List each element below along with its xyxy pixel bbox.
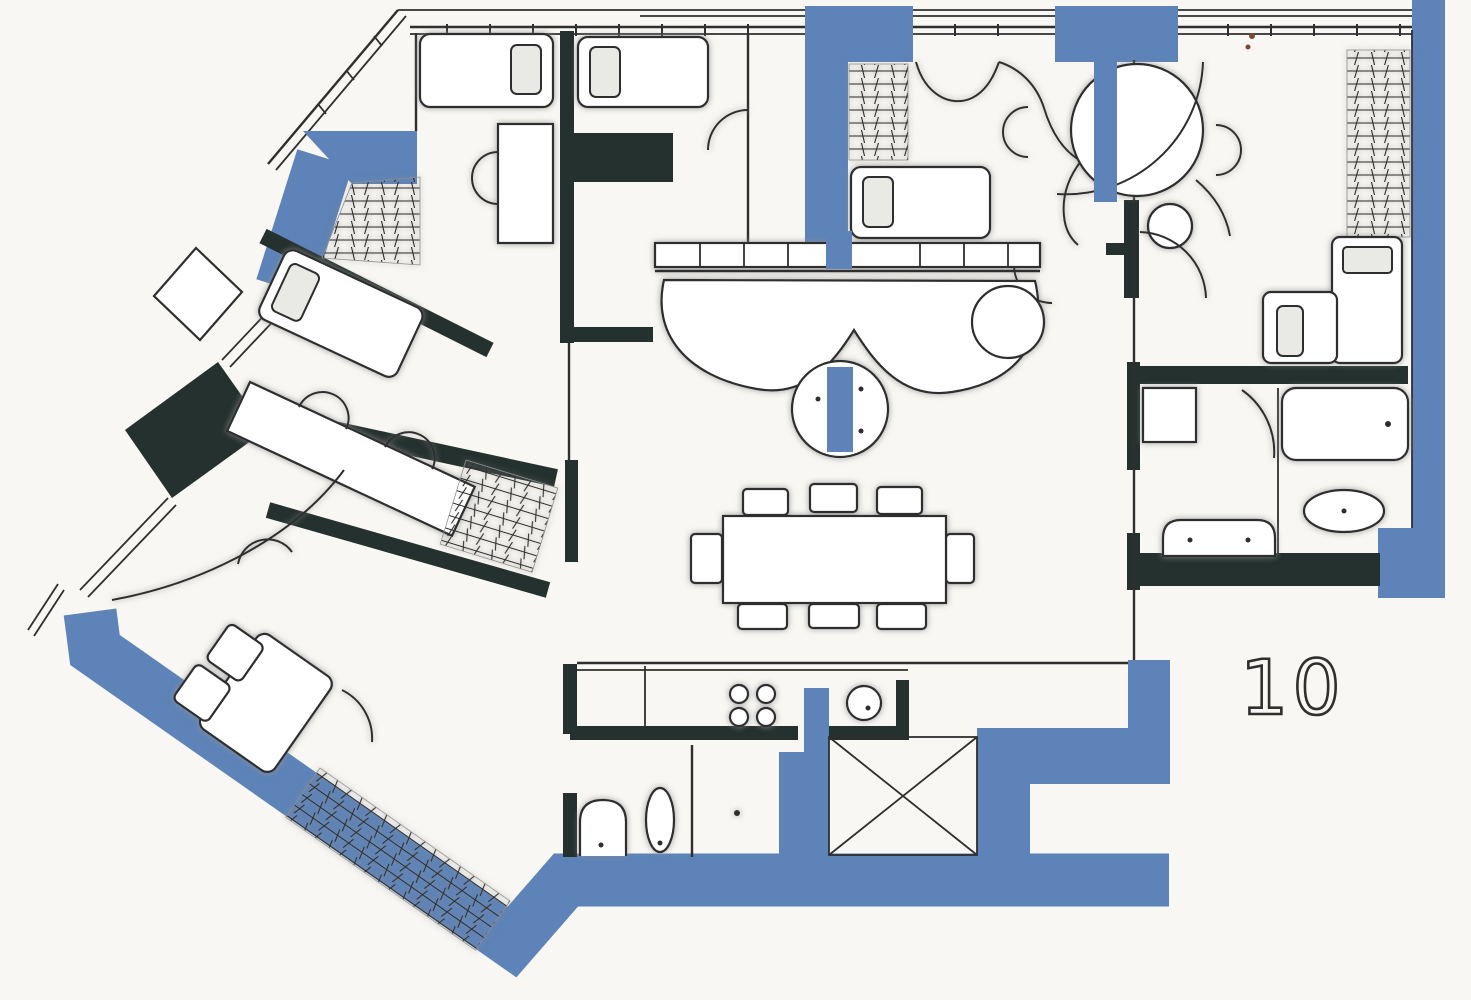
dining-chair bbox=[738, 604, 787, 629]
floor-plan-scan: 10 bbox=[0, 0, 1471, 1000]
wardrobe bbox=[572, 133, 673, 182]
cooktop-burner bbox=[757, 685, 775, 703]
wall-pier bbox=[1094, 60, 1117, 202]
dining-chair bbox=[877, 604, 926, 629]
stool bbox=[1148, 204, 1192, 248]
faucet-dot bbox=[1188, 538, 1193, 543]
rug-hatched bbox=[1347, 50, 1410, 237]
interior-wall bbox=[560, 327, 653, 342]
interior-wall bbox=[1124, 200, 1139, 298]
dining-chair bbox=[691, 534, 722, 583]
table-dot bbox=[859, 387, 864, 392]
exterior-wall-pier bbox=[1128, 660, 1170, 784]
exterior-wall-pier bbox=[1055, 6, 1178, 62]
kitchen-sink bbox=[847, 686, 881, 720]
dining-chair bbox=[810, 484, 857, 512]
interior-wall bbox=[563, 664, 577, 734]
toilet bbox=[580, 800, 626, 856]
ink-speck bbox=[1246, 45, 1251, 50]
bed-pillow bbox=[590, 47, 620, 97]
dining-chair bbox=[946, 534, 974, 583]
rug-hatched bbox=[849, 64, 908, 160]
interior-wall bbox=[560, 31, 574, 343]
desk bbox=[498, 124, 553, 243]
faucet-dot bbox=[1246, 538, 1251, 543]
paper-background bbox=[0, 0, 1471, 1000]
ink-speck bbox=[1249, 33, 1255, 39]
table-dot bbox=[816, 397, 821, 402]
faucet-dot bbox=[1342, 509, 1347, 514]
exterior-wall-pier bbox=[805, 60, 848, 250]
exterior-wall-pier bbox=[779, 752, 806, 858]
fixture-dot bbox=[599, 843, 604, 848]
kitchen-wall bbox=[570, 726, 798, 740]
cooktop-burner bbox=[730, 685, 748, 703]
interior-wall bbox=[563, 793, 577, 857]
bed-pillow bbox=[863, 177, 893, 227]
exterior-wall-right bbox=[1378, 528, 1445, 598]
bed-pillow bbox=[511, 45, 541, 94]
bathroom-wall bbox=[1130, 553, 1380, 586]
shower bbox=[1143, 388, 1196, 442]
wall-pier bbox=[826, 231, 852, 269]
door-dot bbox=[734, 810, 740, 816]
dining-chair bbox=[809, 604, 859, 628]
wall-pier bbox=[804, 688, 829, 858]
elevator-wall bbox=[977, 728, 1030, 905]
fixture-dot bbox=[658, 841, 663, 846]
dining-chair bbox=[877, 487, 922, 514]
chair bbox=[1277, 306, 1303, 356]
dining-table bbox=[723, 516, 946, 603]
floor-plan-drawing: 10 bbox=[0, 0, 1471, 1000]
interior-wall bbox=[896, 680, 909, 740]
table-runner bbox=[827, 367, 853, 452]
cooktop-burner bbox=[757, 708, 775, 726]
table-dot bbox=[859, 429, 864, 434]
cabinet-top bbox=[1343, 247, 1392, 273]
exterior-wall-pier bbox=[805, 6, 913, 62]
interior-wall bbox=[565, 460, 578, 562]
drain-dot bbox=[1385, 421, 1391, 427]
washbasin bbox=[1163, 520, 1275, 556]
dining-chair bbox=[743, 489, 788, 515]
armchair-round bbox=[972, 286, 1044, 358]
cooktop-burner bbox=[730, 708, 748, 726]
plan-number-label: 10 bbox=[1240, 643, 1345, 732]
drain-dot bbox=[866, 706, 871, 711]
exterior-wall-right bbox=[1412, 0, 1445, 532]
bathroom-wall bbox=[1138, 366, 1408, 384]
interior-wall bbox=[1106, 243, 1126, 255]
